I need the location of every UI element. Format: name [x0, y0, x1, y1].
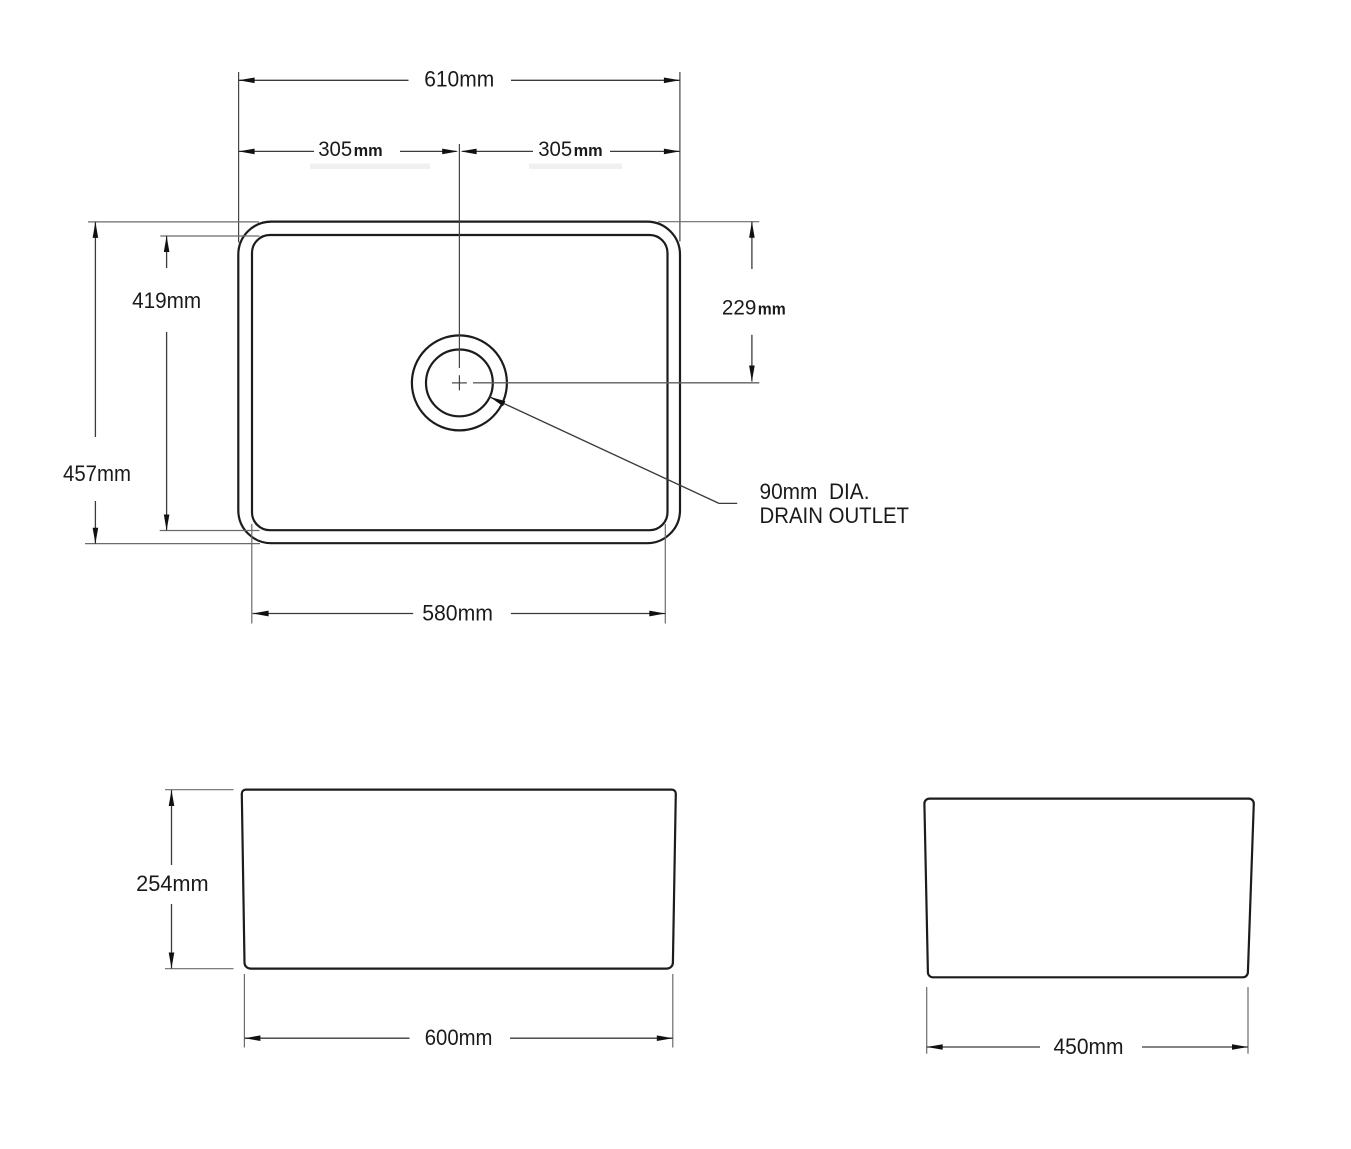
svg-text:450mm: 450mm [1054, 1034, 1124, 1059]
svg-text:90mm DIA.: 90mm DIA. [760, 479, 870, 504]
svg-text:580mm: 580mm [422, 601, 493, 626]
svg-text:305: 305 [318, 138, 352, 161]
svg-text:457mm: 457mm [63, 461, 131, 486]
svg-text:600mm: 600mm [425, 1025, 493, 1050]
svg-text:229: 229 [722, 297, 757, 320]
svg-text:254mm: 254mm [136, 871, 209, 896]
svg-text:419mm: 419mm [132, 288, 201, 313]
svg-text:305: 305 [538, 138, 572, 161]
svg-text:610mm: 610mm [424, 67, 494, 92]
svg-text:mm: mm [758, 301, 786, 319]
svg-text:mm: mm [574, 142, 603, 160]
svg-text:mm: mm [354, 142, 383, 160]
svg-text:DRAIN OUTLET: DRAIN OUTLET [760, 503, 910, 528]
